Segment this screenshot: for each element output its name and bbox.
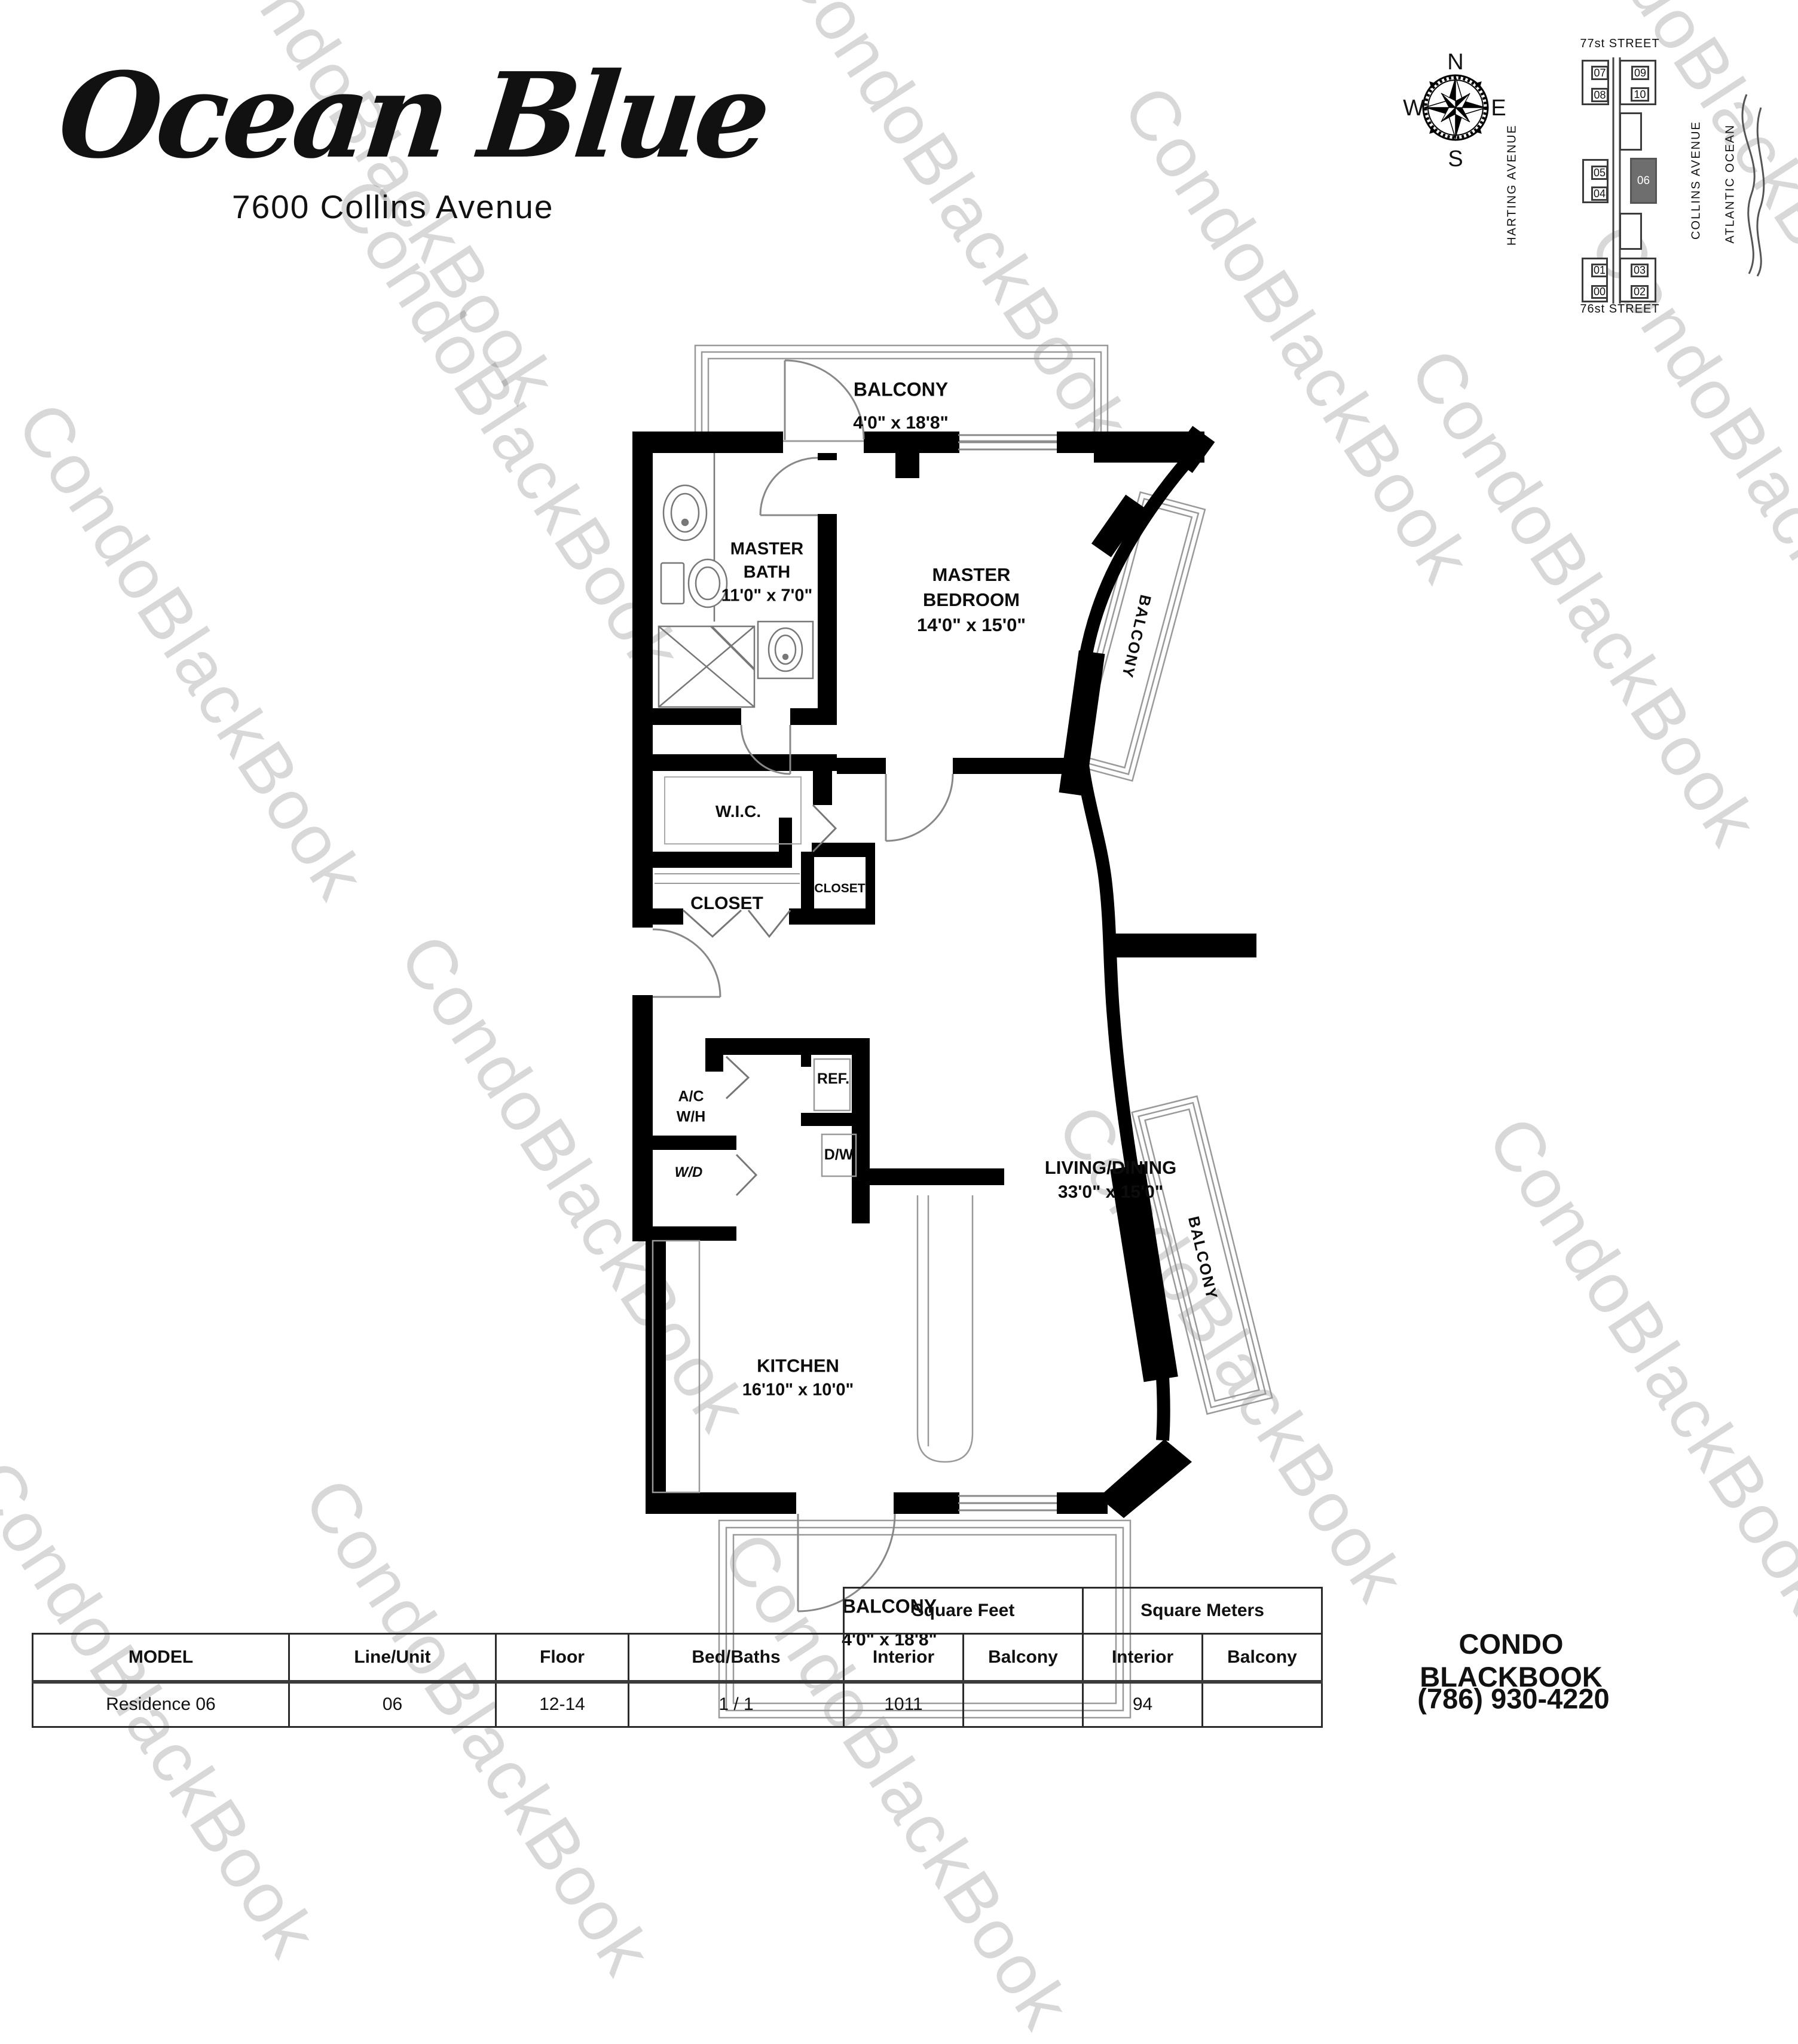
room-label-wd: W/D xyxy=(675,1163,703,1182)
cell-interior-m: 94 xyxy=(1083,1682,1203,1727)
col-header-interior-ft: Interior xyxy=(844,1634,964,1682)
table-row: Residence 06 06 12-14 1 / 1 1011 94 xyxy=(33,1682,1322,1727)
room-label-dw: D/W xyxy=(824,1145,854,1165)
col-header-bed-baths: Bed/Baths xyxy=(629,1634,844,1682)
col-header-floor: Floor xyxy=(496,1634,629,1682)
unit-spec-table: Square Feet Square Meters MODEL Line/Uni… xyxy=(32,1587,1323,1728)
room-label-master-bedroom: MASTERBEDROOM14'0" x 15'0" xyxy=(917,562,1026,638)
floorplan-drawing xyxy=(0,0,1798,1796)
room-label-living-dining: LIVING/DINING33'0" x 15'0" xyxy=(1045,1155,1176,1204)
brand-phone: (786) 930-4220 xyxy=(1417,1682,1609,1715)
col-header-balcony-m: Balcony xyxy=(1203,1634,1322,1682)
cell-balcony-ft xyxy=(964,1682,1083,1727)
table-group-header-row: Square Feet Square Meters xyxy=(33,1588,1322,1634)
room-label-balcony-top: BALCONY xyxy=(854,377,948,402)
room-label-closet-small: CLOSET xyxy=(814,880,865,897)
cell-floor: 12-14 xyxy=(496,1682,629,1727)
cell-interior-ft: 1011 xyxy=(844,1682,964,1727)
cell-line-unit: 06 xyxy=(289,1682,496,1727)
room-dims-balcony-top: 4'0" x 18'8" xyxy=(853,411,949,436)
toilet xyxy=(661,563,684,604)
group-header-square-meters: Square Meters xyxy=(1083,1588,1322,1634)
col-header-model: MODEL xyxy=(33,1634,289,1682)
group-header-square-feet: Square Feet xyxy=(844,1588,1083,1634)
room-label-closet: CLOSET xyxy=(690,892,763,916)
col-header-interior-m: Interior xyxy=(1083,1634,1203,1682)
table-header-row: MODEL Line/Unit Floor Bed/Baths Interior… xyxy=(33,1634,1322,1682)
page: { "logo": { "title": "Ocean Blue", "subt… xyxy=(0,0,1798,1796)
col-header-line-unit: Line/Unit xyxy=(289,1634,496,1682)
room-label-master-bath: MASTERBATH11'0" x 7'0" xyxy=(721,537,813,607)
room-label-ref: REF. xyxy=(817,1069,849,1090)
room-label-wic: W.I.C. xyxy=(715,800,761,823)
cell-bed-baths: 1 / 1 xyxy=(629,1682,844,1727)
col-header-balcony-ft: Balcony xyxy=(964,1634,1083,1682)
cell-model: Residence 06 xyxy=(33,1682,289,1727)
cell-balcony-m xyxy=(1203,1682,1322,1727)
room-label-kitchen: KITCHEN16'10" x 10'0" xyxy=(742,1354,854,1402)
room-label-ac-wh: A/CW/H xyxy=(677,1087,706,1127)
